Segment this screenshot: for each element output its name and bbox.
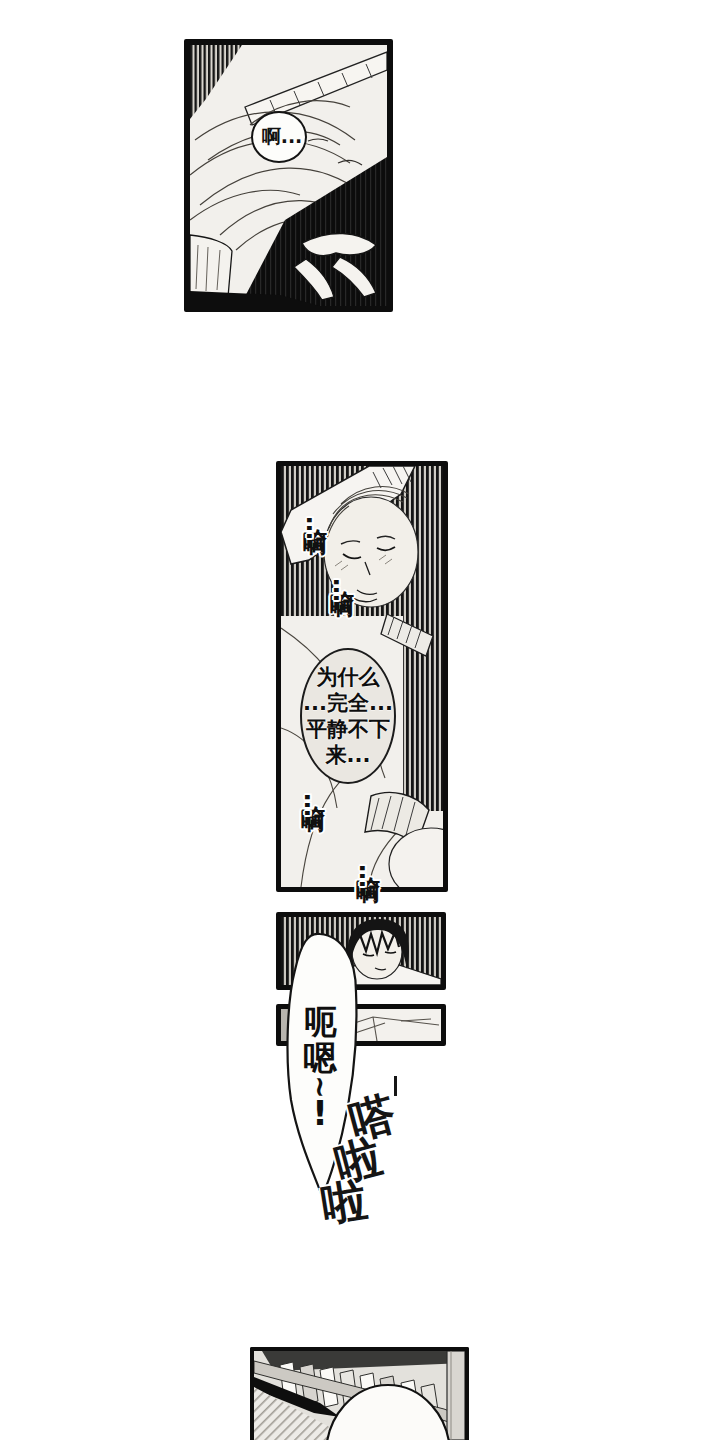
shout-char-exclaim: ! <box>312 1098 328 1128</box>
thought-line: 为什么 <box>317 664 380 690</box>
manga-page: 啊... <box>0 0 720 1440</box>
thought-line: 平静不下 <box>306 716 390 742</box>
moan-text-1: 哈啊… <box>299 510 331 543</box>
shelf-side-column <box>447 1351 465 1440</box>
thought-bubble: 为什么 ...完全... 平静不下 来... <box>300 648 396 784</box>
sleeve-cuff <box>190 235 232 299</box>
shout-text: 呃 嗯 ~ ! <box>300 1004 340 1128</box>
moan-text-2: 哈啊… <box>326 572 358 605</box>
moan-text-3: 哈啊… <box>297 787 329 820</box>
panel1-artwork <box>190 45 387 306</box>
shout-char: 嗯 <box>304 1040 337 1076</box>
sfx-accent-line <box>394 1076 397 1096</box>
comic-panel-1 <box>184 39 393 312</box>
sfx-char-3: 啦 <box>318 1170 372 1236</box>
panel5-artwork <box>254 1351 465 1440</box>
speech-text: 啊... <box>262 124 303 150</box>
comic-panel-5 <box>250 1347 469 1440</box>
comic-panel-2: 为什么 ...完全... 平静不下 来... 哈啊… 哈啊… 哈啊… <box>276 461 448 892</box>
speech-bubble-ah: 啊... <box>251 111 307 163</box>
shout-char-tilde: ~ <box>309 1075 331 1098</box>
shout-char: 呃 <box>304 1004 337 1040</box>
moan-text-4: 哈啊… <box>352 858 384 891</box>
thought-line: 来... <box>326 742 371 768</box>
thought-line: ...完全... <box>303 690 393 716</box>
